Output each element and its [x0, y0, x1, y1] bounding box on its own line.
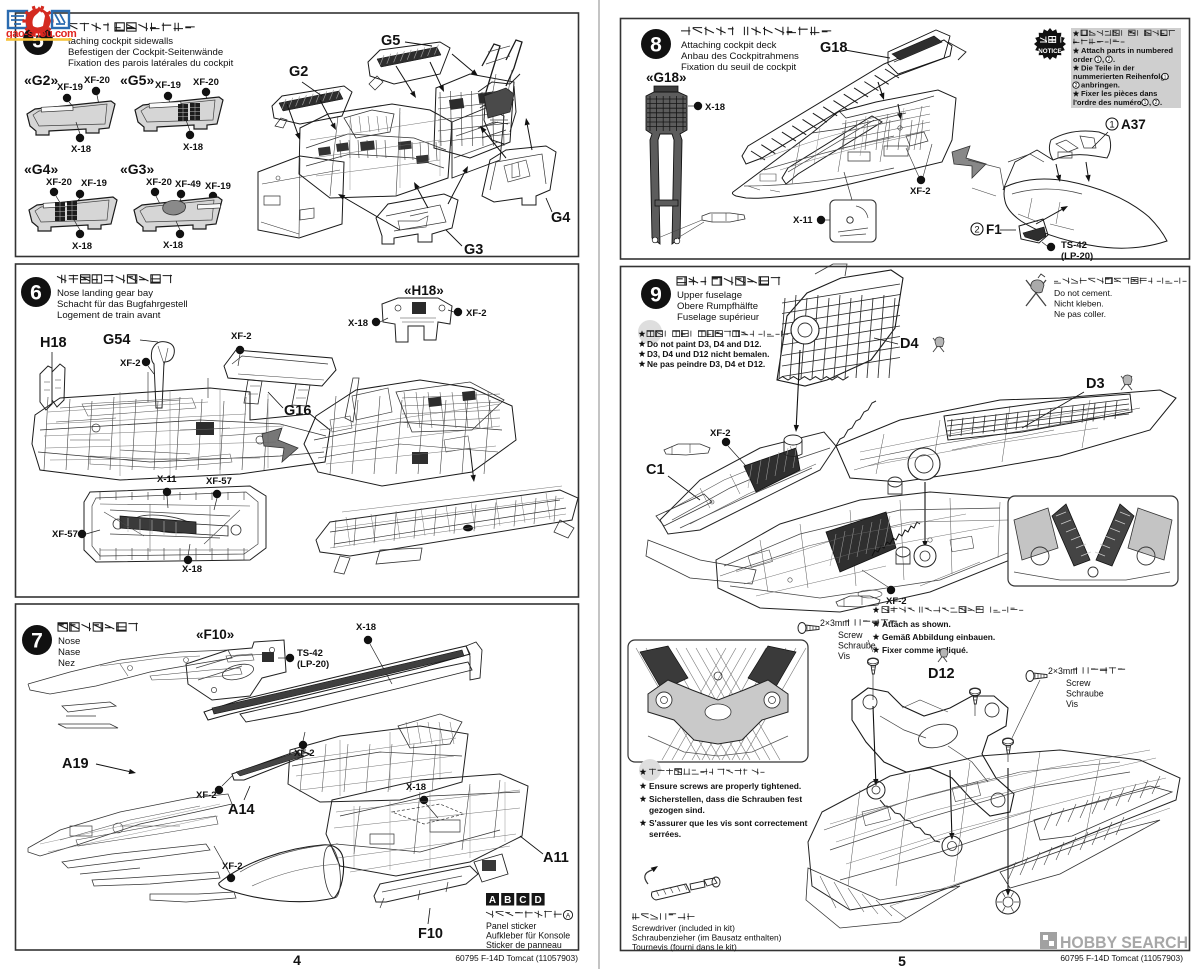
svg-text:X-18: X-18 [163, 240, 183, 251]
svg-text:Do not cement.: Do not cement. [1054, 288, 1112, 298]
svg-text:«G5»: «G5» [120, 72, 154, 88]
svg-text:Ne pas coller.: Ne pas coller. [1054, 309, 1106, 319]
svg-text:2: 2 [1108, 57, 1111, 63]
svg-text:X-18: X-18 [182, 564, 202, 575]
svg-text:Ne pas peindre D3, D4 et D12.: Ne pas peindre D3, D4 et D12. [647, 359, 765, 369]
svg-text:X-18: X-18 [356, 622, 376, 633]
svg-text:X-18: X-18 [705, 102, 725, 113]
svg-text:Schacht für das Bugfahrgestell: Schacht für das Bugfahrgestell [57, 299, 188, 310]
svg-text:«F10»: «F10» [196, 627, 234, 642]
svg-text:Screw: Screw [838, 630, 863, 640]
svg-text:2: 2 [1075, 83, 1078, 89]
svg-text:Nicht kleben.: Nicht kleben. [1054, 299, 1104, 309]
svg-text:Upper fuselage: Upper fuselage [677, 290, 742, 301]
svg-text:4: 4 [293, 952, 301, 968]
svg-text:D12: D12 [928, 666, 955, 682]
svg-text:Vis: Vis [838, 651, 851, 661]
svg-text:Anbau des Cockpitrahmens: Anbau des Cockpitrahmens [681, 51, 799, 62]
svg-text:XF-19: XF-19 [81, 178, 107, 189]
svg-text:XF-20: XF-20 [46, 177, 72, 188]
svg-text:«G18»: «G18» [646, 70, 687, 85]
svg-text:Vis: Vis [1066, 699, 1079, 709]
svg-text:X-11: X-11 [793, 215, 813, 226]
svg-text:TS-42: TS-42 [297, 648, 323, 659]
svg-text:XF-19: XF-19 [57, 82, 83, 93]
svg-text:60795 F-14D Tomcat (11057903): 60795 F-14D Tomcat (11057903) [455, 953, 578, 963]
svg-text:XF-20: XF-20 [146, 177, 172, 188]
svg-text:Sticker de panneau: Sticker de panneau [486, 940, 562, 950]
svg-text:Fixation du seuil de cockpit: Fixation du seuil de cockpit [681, 62, 797, 73]
svg-text:Sicherstellen, dass die Schrau: Sicherstellen, dass die Schrauben fest [649, 794, 802, 804]
svg-text:X-18: X-18 [348, 318, 368, 329]
svg-text:XF-2: XF-2 [466, 308, 487, 319]
svg-text:,: , [1149, 98, 1151, 107]
svg-text:G18: G18 [820, 40, 847, 56]
svg-text:A19: A19 [62, 756, 89, 772]
svg-text:HOBBY SEARCH: HOBBY SEARCH [1060, 933, 1188, 952]
svg-text:A37: A37 [1121, 117, 1146, 132]
svg-text:G3: G3 [464, 242, 483, 258]
svg-text:G5: G5 [381, 33, 400, 49]
svg-text:.: . [1160, 98, 1162, 107]
svg-text:F1: F1 [986, 222, 1002, 237]
svg-text:Nose landing gear bay: Nose landing gear bay [57, 288, 153, 299]
svg-text:Befestigen der Cockpit-Seitenw: Befestigen der Cockpit-Seitenwände [68, 47, 223, 58]
svg-text:F10: F10 [418, 926, 443, 942]
svg-text:Nez: Nez [58, 658, 75, 669]
svg-text:D4: D4 [900, 336, 919, 352]
svg-text:(LP-20): (LP-20) [1061, 251, 1093, 262]
svg-text:9: 9 [650, 284, 662, 307]
svg-text:TS-42: TS-42 [1061, 240, 1087, 251]
svg-text:XF-57: XF-57 [206, 476, 232, 487]
svg-text:Attach as shown.: Attach as shown. [882, 619, 951, 629]
svg-text:X-18: X-18 [183, 142, 203, 153]
svg-text:H18: H18 [40, 335, 67, 351]
svg-text:2×3mm: 2×3mm [820, 618, 850, 628]
svg-text:Aufkleber für Konsole: Aufkleber für Konsole [486, 931, 570, 941]
svg-text:Fixation des parois latérales: Fixation des parois latérales du cockpit [68, 58, 234, 69]
svg-text:Attach parts in numbered: Attach parts in numbered [1081, 46, 1173, 55]
svg-text:«G2»: «G2» [24, 72, 58, 88]
svg-text:Fuselage supérieur: Fuselage supérieur [677, 312, 760, 323]
svg-text:G54: G54 [103, 332, 130, 348]
svg-text:8: 8 [650, 34, 662, 57]
svg-text:Nose: Nose [58, 636, 80, 647]
svg-text:A: A [489, 895, 496, 906]
svg-text:G4: G4 [551, 210, 570, 226]
svg-text:X-18: X-18 [406, 782, 426, 793]
svg-text:A14: A14 [228, 802, 255, 818]
svg-text:XF-2: XF-2 [120, 358, 141, 369]
svg-text:2×3mm: 2×3mm [1048, 666, 1078, 676]
svg-text:1: 1 [1144, 100, 1147, 106]
svg-text:(LP-20): (LP-20) [297, 659, 329, 670]
svg-text:XF-19: XF-19 [155, 80, 181, 91]
svg-text:A11: A11 [543, 850, 569, 866]
svg-text:XF-20: XF-20 [193, 77, 219, 88]
svg-text:XF-19: XF-19 [205, 181, 231, 192]
svg-text:Tournevis (fourni dans le kit): Tournevis (fourni dans le kit) [632, 942, 737, 952]
svg-text:XF-2: XF-2 [710, 428, 731, 439]
svg-text:«G3»: «G3» [120, 161, 154, 177]
svg-text:G2: G2 [289, 64, 308, 80]
svg-text:Attaching cockpit deck: Attaching cockpit deck [681, 40, 777, 51]
svg-text:«H18»: «H18» [404, 283, 444, 298]
svg-text:Fixer comme indiqué.: Fixer comme indiqué. [882, 645, 968, 655]
svg-text:XF-2: XF-2 [886, 596, 907, 607]
svg-text:XF-2: XF-2 [222, 861, 243, 872]
svg-text:NOTICE: NOTICE [1038, 48, 1061, 55]
svg-text:XF-49: XF-49 [175, 179, 201, 190]
svg-text:gezogen sind.: gezogen sind. [649, 805, 705, 815]
svg-text:serrées.: serrées. [649, 829, 681, 839]
svg-text:XF-2: XF-2 [294, 748, 315, 759]
svg-text:Schraubenzieher (im Bausatz en: Schraubenzieher (im Bausatz enthalten) [632, 933, 782, 943]
svg-text:Gemäß Abbildung einbauen.: Gemäß Abbildung einbauen. [882, 632, 995, 642]
svg-text:Nase: Nase [58, 647, 80, 658]
svg-text:B: B [504, 895, 511, 906]
svg-text:taching cockpit sidewalls: taching cockpit sidewalls [68, 36, 173, 47]
svg-text:A: A [566, 912, 571, 919]
svg-text:D: D [534, 895, 541, 906]
svg-text:S'assurer que les vis sont cor: S'assurer que les vis sont correctement [649, 818, 808, 828]
svg-text:7: 7 [31, 630, 43, 653]
svg-text:Logement de train avant: Logement de train avant [57, 310, 161, 321]
svg-text:X-18: X-18 [71, 144, 91, 155]
svg-text:Schraube: Schraube [1066, 689, 1104, 699]
svg-text:C1: C1 [646, 462, 665, 478]
svg-text:XF-20: XF-20 [84, 75, 110, 86]
svg-text:1: 1 [1164, 74, 1167, 80]
svg-text:2: 2 [974, 224, 979, 235]
svg-text:Panel sticker: Panel sticker [486, 921, 536, 931]
svg-text:l'ordre des numéros: l'ordre des numéros [1073, 98, 1146, 107]
svg-text:1: 1 [1109, 119, 1114, 130]
svg-text:X-11: X-11 [157, 474, 177, 485]
svg-text:Do not paint D3, D4 and D12.: Do not paint D3, D4 and D12. [647, 339, 761, 349]
svg-text:2: 2 [1155, 100, 1158, 106]
svg-text:1: 1 [1097, 57, 1100, 63]
svg-text:D3, D4 und D12 nicht bemalen.: D3, D4 und D12 nicht bemalen. [647, 349, 769, 359]
svg-text:5: 5 [898, 953, 906, 969]
svg-text:C: C [519, 895, 526, 906]
svg-text:Screwdriver (included in kit): Screwdriver (included in kit) [632, 923, 735, 933]
svg-text:Screw: Screw [1066, 678, 1091, 688]
svg-text:6: 6 [30, 282, 42, 305]
svg-text:XF-57: XF-57 [52, 529, 78, 540]
svg-text:D3: D3 [1086, 376, 1105, 392]
svg-text:X-18: X-18 [72, 241, 92, 252]
svg-text:60795 F-14D Tomcat (11057903): 60795 F-14D Tomcat (11057903) [1060, 953, 1183, 963]
svg-text:Ensure screws are properly tig: Ensure screws are properly tightened. [649, 781, 801, 791]
svg-text:XF-2: XF-2 [231, 331, 252, 342]
svg-text:«G4»: «G4» [24, 161, 58, 177]
svg-text:XF-2: XF-2 [910, 186, 931, 197]
svg-text:Obere Rumpfhälfte: Obere Rumpfhälfte [677, 301, 758, 312]
